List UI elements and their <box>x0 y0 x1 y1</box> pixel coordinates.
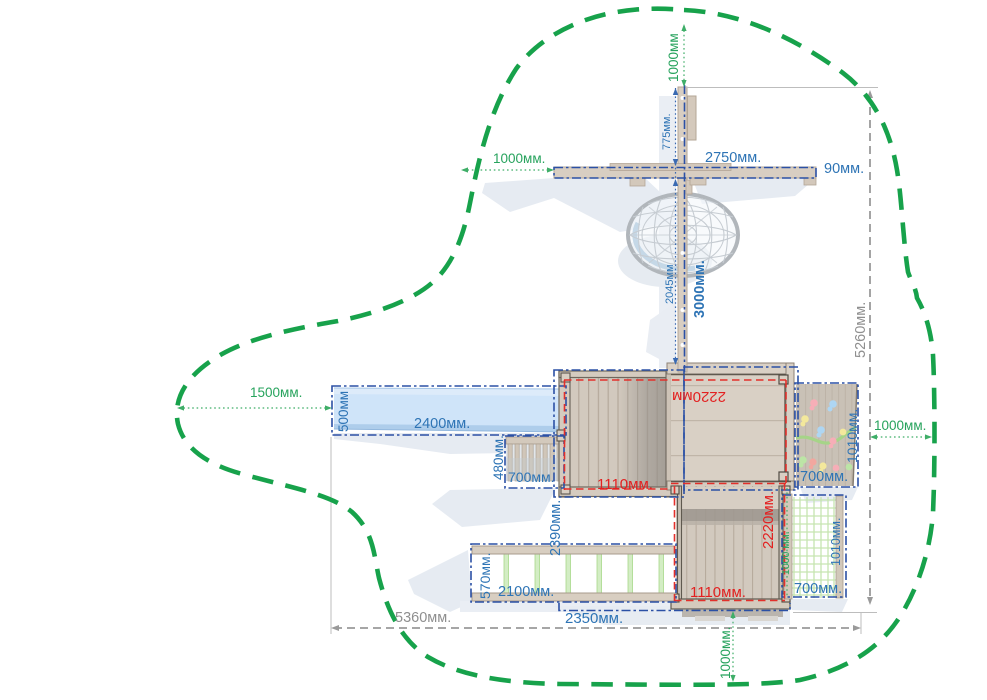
svg-text:570мм.: 570мм. <box>477 553 493 600</box>
svg-text:700мм.: 700мм. <box>794 581 842 597</box>
svg-text:2045мм: 2045мм <box>664 264 676 304</box>
svg-text:1000мм.: 1000мм. <box>874 418 926 433</box>
svg-text:1000мм.: 1000мм. <box>718 627 733 679</box>
svg-text:1500мм.: 1500мм. <box>250 385 302 400</box>
svg-text:3000мм.: 3000мм. <box>692 260 708 318</box>
svg-text:2750мм.: 2750мм. <box>705 150 761 166</box>
svg-text:90мм.: 90мм. <box>824 161 864 177</box>
svg-text:2220мм.: 2220мм. <box>760 491 777 549</box>
svg-text:700мм.: 700мм. <box>508 469 555 485</box>
svg-text:1010мм.: 1010мм. <box>844 409 860 463</box>
svg-text:2350мм.: 2350мм. <box>565 610 623 627</box>
svg-text:5260мм.: 5260мм. <box>853 302 869 358</box>
svg-text:500мм: 500мм <box>336 391 351 432</box>
svg-text:2100мм.: 2100мм. <box>498 584 554 600</box>
svg-text:775мм.: 775мм. <box>661 113 673 150</box>
svg-text:1110мм.: 1110мм. <box>690 584 746 601</box>
svg-text:1000мм.: 1000мм. <box>493 151 545 166</box>
svg-text:700мм.: 700мм. <box>800 469 848 485</box>
svg-text:1110мм.: 1110мм. <box>597 476 653 493</box>
svg-text:480мм.: 480мм. <box>491 435 506 480</box>
svg-text:2390мм.: 2390мм. <box>548 500 564 556</box>
svg-text:2400мм.: 2400мм. <box>414 416 470 432</box>
svg-text:1010мм.: 1010мм. <box>829 518 843 566</box>
svg-text:5360мм.: 5360мм. <box>395 610 451 626</box>
svg-text:1000мм: 1000мм <box>666 33 681 82</box>
svg-text:2220мм: 2220мм <box>672 388 726 405</box>
svg-text:1000 мм.: 1000 мм. <box>780 531 792 575</box>
